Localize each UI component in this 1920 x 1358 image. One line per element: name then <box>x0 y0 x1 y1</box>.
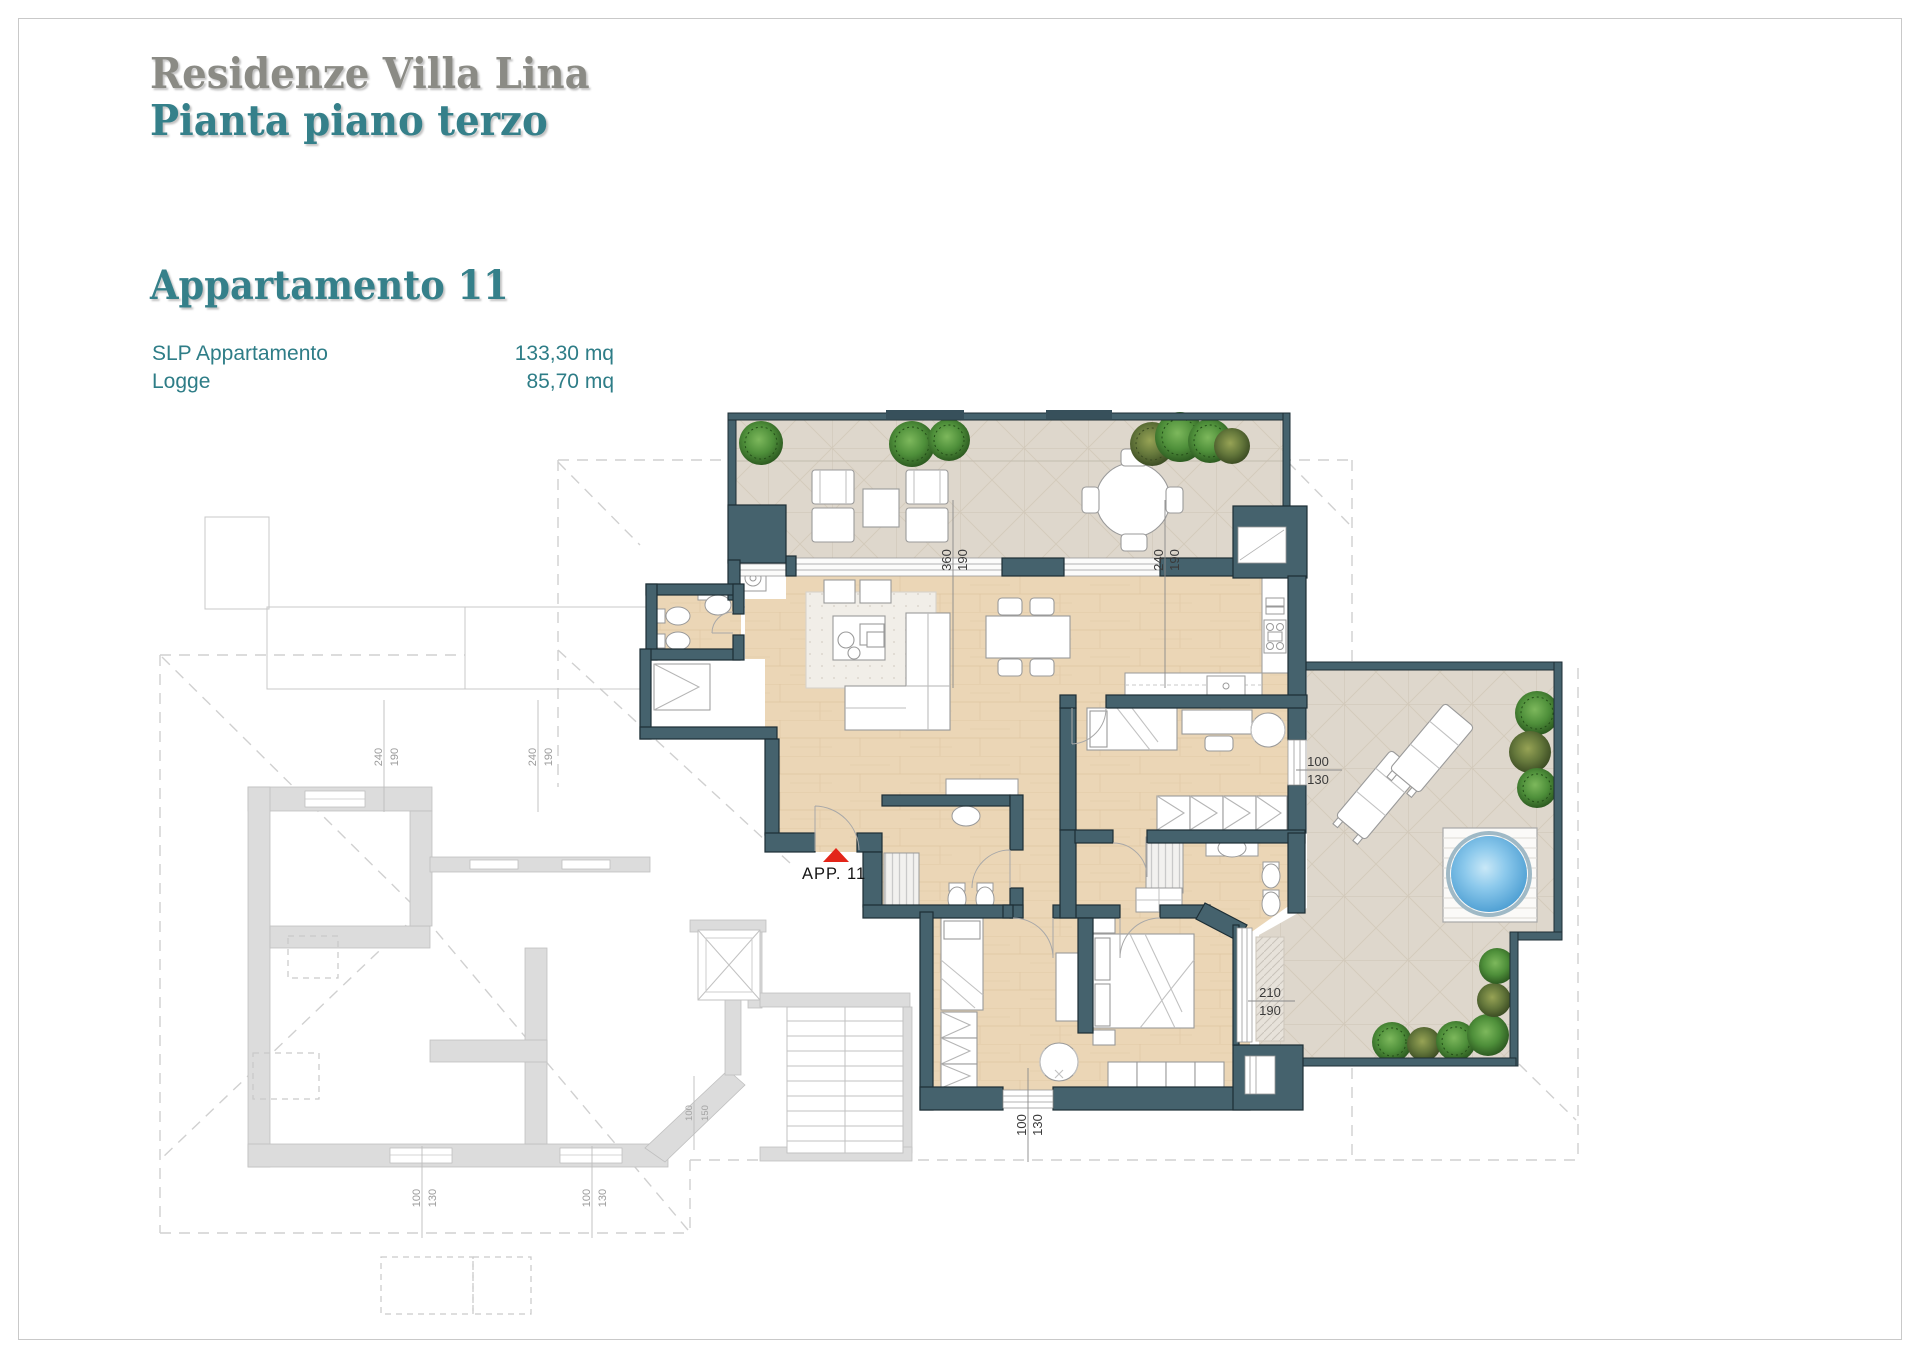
window-southeast <box>1237 928 1252 1042</box>
shower <box>884 853 919 911</box>
dining-chair <box>998 598 1022 615</box>
dim-text: 190 <box>1167 549 1182 571</box>
pouf <box>824 580 855 603</box>
pillow <box>1095 984 1110 1026</box>
toilet-tank <box>657 609 665 623</box>
terrace-chair <box>1082 487 1099 513</box>
pouf <box>860 580 891 603</box>
armchair-round <box>1040 1043 1078 1081</box>
bench-unit <box>1108 1062 1137 1089</box>
parapet-cap <box>1046 410 1112 419</box>
bidet <box>666 632 690 650</box>
bidet-tank <box>657 634 665 648</box>
bidet <box>1262 892 1280 916</box>
terrace-chair <box>1166 487 1183 513</box>
dim-text: 100 <box>1307 754 1329 769</box>
vestibule-wardrobe <box>654 664 710 710</box>
dim-text: 210 <box>1259 985 1281 1000</box>
ghost-dim-text: 240 <box>373 748 385 766</box>
pillow <box>1095 938 1110 980</box>
toilet <box>666 607 690 625</box>
dim-text: 360 <box>939 549 954 571</box>
dim-text: 130 <box>1030 1114 1045 1136</box>
ghost-furniture <box>253 936 531 1314</box>
sink-basin <box>1266 598 1284 606</box>
wardrobe-row <box>1157 796 1287 830</box>
washbasin <box>705 595 731 615</box>
ghost-dim-text: 100 <box>684 1105 695 1121</box>
terrace-chair <box>1121 534 1147 551</box>
ghost-dim-text: 130 <box>597 1189 609 1207</box>
ghost-dim-text: 190 <box>543 748 555 766</box>
pillow <box>944 921 980 939</box>
shower <box>1146 837 1183 893</box>
ghost-dim-text: 130 <box>427 1189 439 1207</box>
jacuzzi <box>1443 828 1537 922</box>
unit-marker: APP. 11 <box>802 848 866 883</box>
dim-text: 190 <box>955 549 970 571</box>
kitchen-sink <box>1207 676 1245 696</box>
floor-plan-drawing: 240 190 240 190 100 130 100 130 100 150 <box>0 0 1920 1358</box>
window-east <box>1288 740 1306 785</box>
jacuzzi-pool <box>1451 836 1527 912</box>
ghost-dim-text: 100 <box>581 1189 593 1207</box>
dim-text: 130 <box>1307 772 1329 787</box>
vanity <box>946 779 1018 795</box>
ghost-dim-text: 240 <box>527 748 539 766</box>
bench-unit <box>1166 1062 1195 1089</box>
parapet-cap <box>886 410 964 419</box>
round-dining-table <box>1096 463 1170 537</box>
washbasin <box>952 806 980 826</box>
desk <box>1182 710 1252 734</box>
ghost-dim-text: 150 <box>700 1105 711 1121</box>
terrace-table <box>863 489 899 527</box>
dim-text: 240 <box>1151 549 1166 571</box>
ghost-dim-text: 100 <box>411 1189 423 1207</box>
terrace-armchair <box>812 508 854 542</box>
unit-marker-label: APP. 11 <box>802 865 866 883</box>
terrace-armchair <box>906 470 948 504</box>
ghost-stairs <box>787 1007 903 1153</box>
dining-chair <box>1030 598 1054 615</box>
desk-chair <box>1205 736 1233 751</box>
nightstand <box>1093 918 1115 933</box>
dining-table <box>986 616 1070 658</box>
armchair-round <box>1251 713 1285 747</box>
ghost-windows <box>305 791 622 1163</box>
terrace-armchair <box>906 508 948 542</box>
ghost-elevator <box>698 930 760 1000</box>
dim-text: 190 <box>1259 1003 1281 1018</box>
ghost-dim-text: 190 <box>389 748 401 766</box>
sink-basin <box>1266 607 1284 614</box>
terrace-armchair <box>812 470 854 504</box>
wardrobe <box>654 664 710 710</box>
toilet <box>1262 864 1280 888</box>
dim-text: 100 <box>1014 1114 1029 1136</box>
dining-chair <box>1030 659 1054 676</box>
nightstand <box>1093 1030 1115 1045</box>
dining-chair <box>998 659 1022 676</box>
pillow <box>1090 711 1107 747</box>
ghost-window-lines <box>305 799 622 1155</box>
bench-unit <box>1195 1062 1224 1089</box>
bench-unit <box>1137 1062 1166 1089</box>
window-corner <box>1245 1056 1275 1094</box>
